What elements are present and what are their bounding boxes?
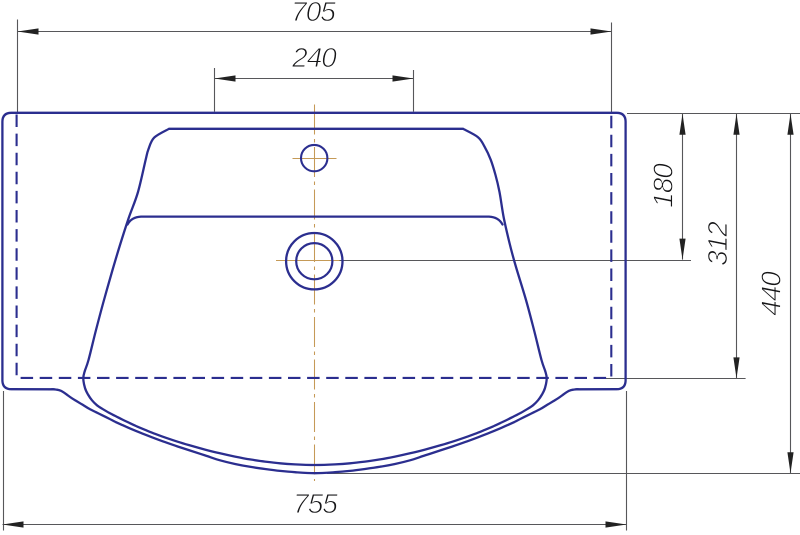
svg-text:705: 705: [291, 0, 336, 27]
svg-text:180: 180: [648, 163, 679, 208]
svg-text:755: 755: [293, 488, 338, 519]
svg-text:440: 440: [756, 271, 787, 316]
svg-text:312: 312: [702, 221, 733, 266]
svg-text:240: 240: [291, 42, 337, 73]
